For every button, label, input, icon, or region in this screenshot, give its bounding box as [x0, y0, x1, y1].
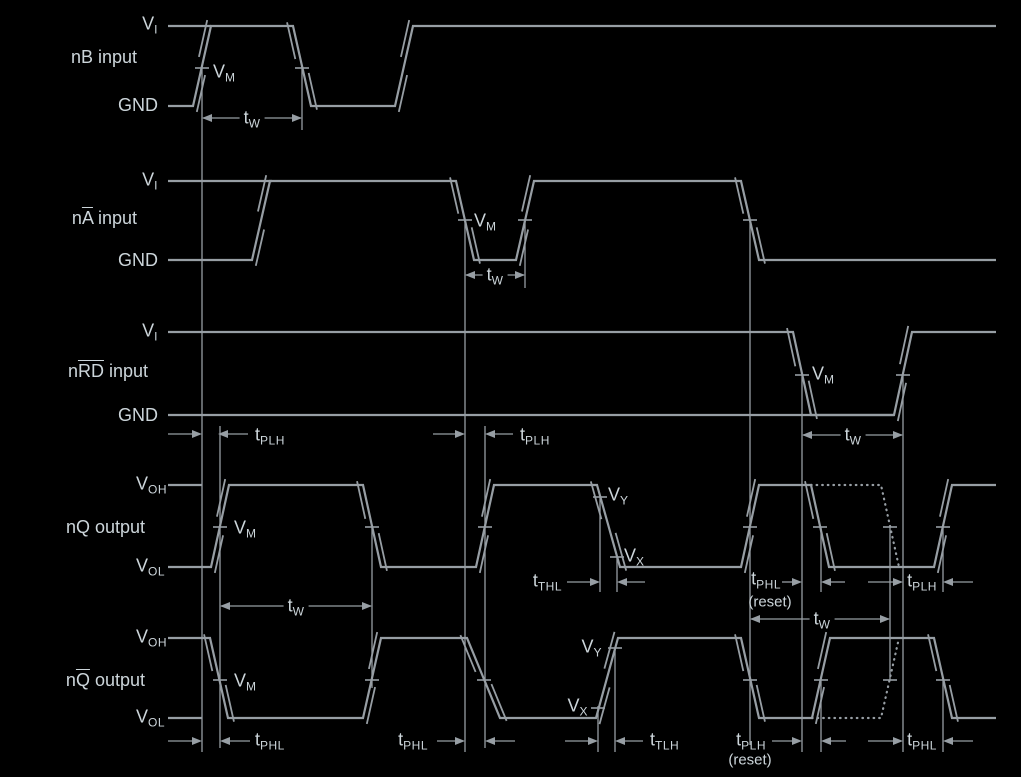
nQ-vm-label: VM	[234, 519, 257, 540]
nQb-vm-label: VM	[234, 672, 257, 693]
gap-arrow-tplh-reset2	[772, 737, 846, 745]
tplh-reset2-sub-label: (reset)	[728, 753, 771, 768]
tw-reset-label: tW	[810, 610, 835, 631]
tphl-label-5: tPHL	[398, 731, 428, 752]
tphl-reset-sub-label: (reset)	[748, 595, 791, 610]
nA-vm-label: VM	[474, 212, 497, 233]
nB-tw-label: tW	[240, 109, 265, 130]
gap-arrow-tphl-4	[168, 737, 250, 745]
tplh-label-2: tPLH	[520, 426, 550, 447]
gap-arrow-tplh-2	[433, 430, 513, 438]
gap-arrow-ttlh	[565, 737, 643, 745]
waveform-canvas	[0, 0, 1021, 777]
waveform-nA-input	[168, 175, 996, 266]
tphl-reset-label: tPHL	[751, 570, 781, 591]
tplh-label-3: tPLH	[907, 572, 937, 593]
nB-vm-label: VM	[213, 63, 236, 84]
nQ-voh-label: VOH	[136, 475, 167, 496]
nQb-vx-label: VX	[567, 697, 588, 718]
nRD-gnd-label: GND	[118, 406, 158, 424]
waveform-nRD-input	[168, 326, 996, 421]
nQ-row-label: nQ output	[66, 518, 145, 536]
nRD-vm-label: VM	[812, 365, 835, 386]
nQb-voh-label: VOH	[136, 628, 167, 649]
gap-arrow-tplh-1	[168, 430, 248, 438]
nQ-tw-label: tW	[284, 597, 309, 618]
nA-row-label: nA input	[72, 209, 137, 227]
waveform-nQ-output	[168, 479, 996, 573]
nB-gnd-label: GND	[118, 96, 158, 114]
tphl-label-6: tPHL	[907, 731, 937, 752]
timing-diagram: VInB inputGNDVMtWVInA inputGNDVMtWVInRD …	[0, 0, 1021, 777]
tplh-label-1: tPLH	[255, 426, 285, 447]
reference-lines	[202, 68, 943, 752]
ttlh-label: tTLH	[650, 731, 679, 752]
nA-vi-label: VI	[142, 171, 158, 192]
nRD-tw-label: tW	[841, 426, 866, 447]
tphl-label-4: tPHL	[255, 731, 285, 752]
nA-tw-label: tW	[483, 266, 508, 287]
nB-vi-label: VI	[142, 15, 158, 36]
nQb-vy-label: VY	[581, 638, 602, 659]
nRD-vi-label: VI	[142, 322, 158, 343]
nQb-row-label: nQ output	[66, 671, 145, 689]
nQb-vol-label: VOL	[136, 708, 165, 729]
nB-row-label: nB input	[71, 48, 137, 66]
nQ-vx-label: VX	[624, 547, 645, 568]
gap-arrow-tphl-5	[437, 737, 515, 745]
tplh-reset2-label: tPLH	[736, 731, 766, 752]
nA-gnd-label: GND	[118, 251, 158, 269]
tthl-label: tTHL	[533, 572, 562, 593]
nQ-vy-label: VY	[608, 486, 629, 507]
nRD-row-label: nRD input	[68, 362, 148, 380]
gap-arrow-tthl	[567, 578, 645, 586]
waveform-nB-input	[168, 20, 996, 112]
nQ-vol-label: VOL	[136, 557, 165, 578]
gap-arrow-tphl-reset	[782, 578, 845, 586]
